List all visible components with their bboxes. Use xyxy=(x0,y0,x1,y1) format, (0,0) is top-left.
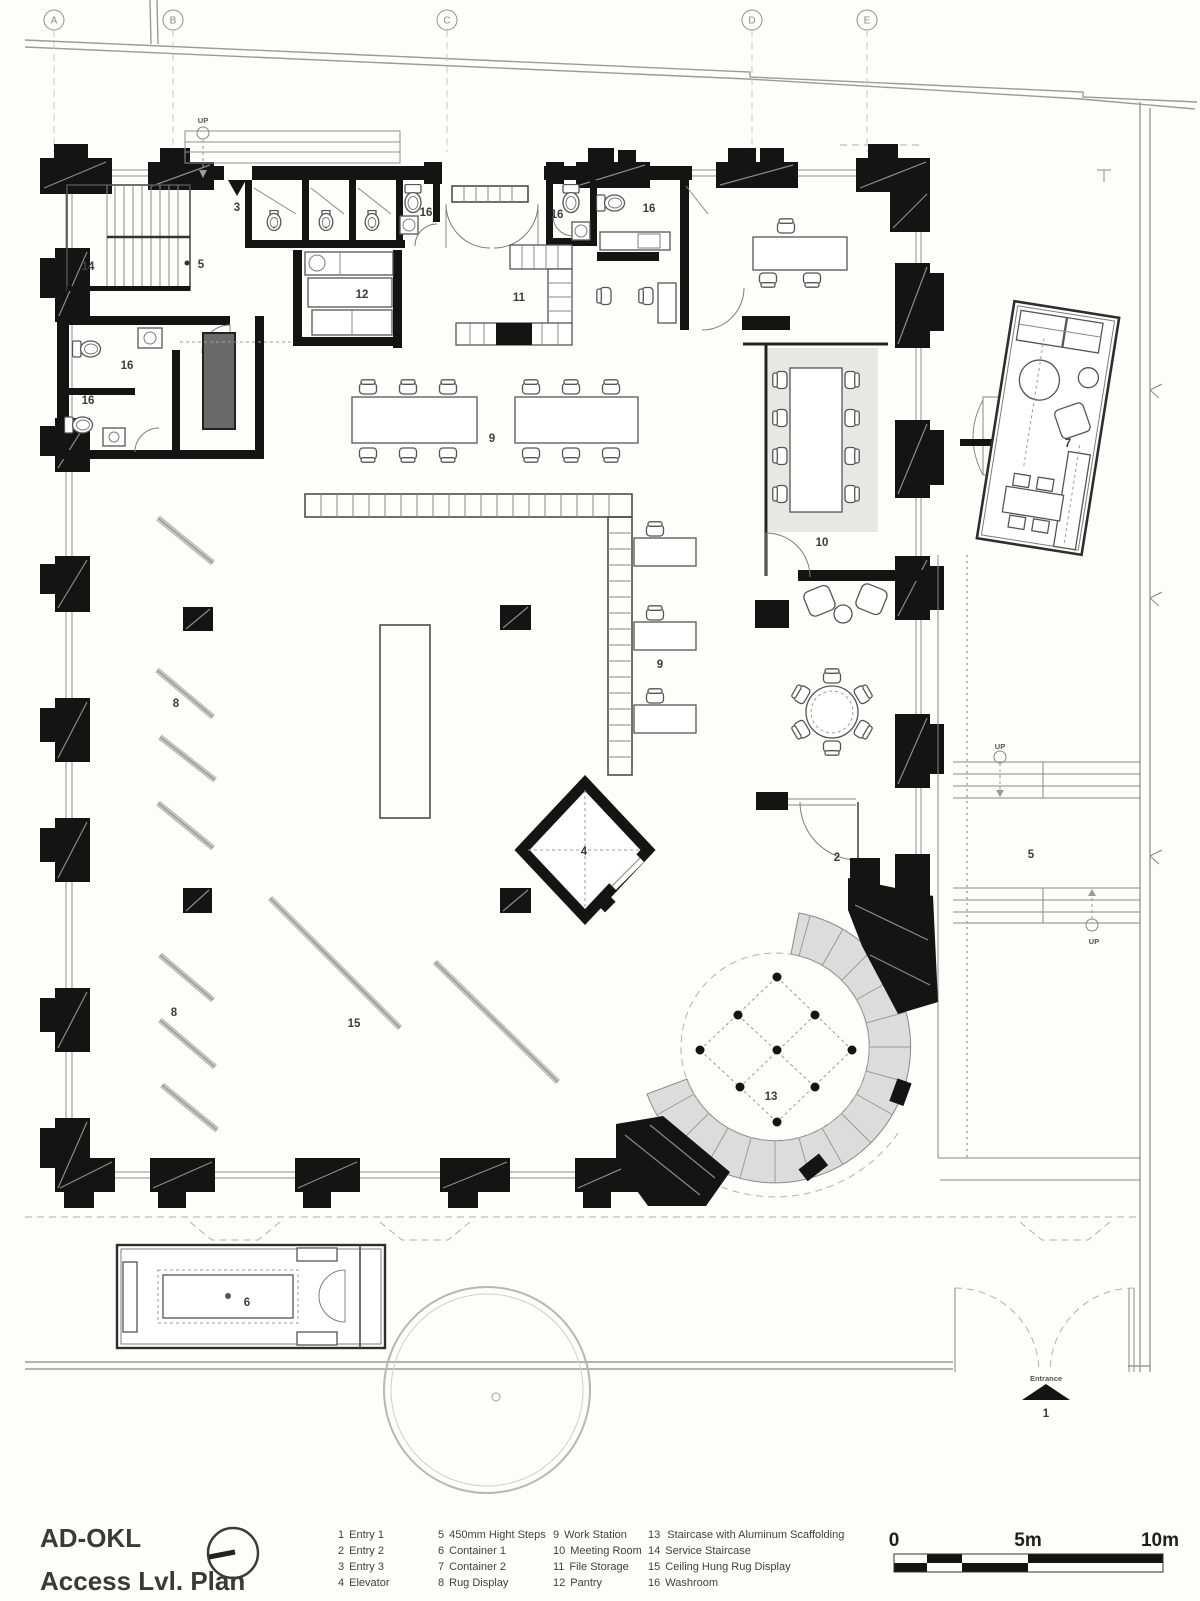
room-label: 9 xyxy=(489,433,495,445)
scale-label-mid: 5m xyxy=(1014,1530,1041,1551)
legend-item: 16Washroom xyxy=(648,1577,718,1589)
shaft xyxy=(203,333,235,429)
structural-grid: A B C D E xyxy=(44,10,877,152)
room-label: 3 xyxy=(234,202,240,214)
room-label: 8 xyxy=(171,1007,178,1019)
legend-column: 9Work Station 10Meeting Room 11File Stor… xyxy=(553,1529,642,1589)
scale-bar-graphic xyxy=(894,1554,1163,1572)
title-block: AD-OKL Access Lvl. Plan xyxy=(40,1523,245,1596)
site-road xyxy=(25,0,1197,109)
svg-text:UP: UP xyxy=(995,742,1005,751)
grid-label: B xyxy=(170,16,177,27)
grid-label: C xyxy=(443,16,450,27)
legend-item: 12Pantry xyxy=(553,1577,603,1589)
room-label: 7 xyxy=(1065,438,1071,450)
room-label: 9 xyxy=(657,659,663,671)
entrance-1: Entrance xyxy=(955,1288,1134,1400)
toilet-icon xyxy=(563,185,579,213)
entry-opening xyxy=(224,162,252,182)
entrance-text: Entrance xyxy=(1030,1374,1062,1383)
room-label: 16 xyxy=(82,395,95,407)
room-label: 5 xyxy=(198,259,205,271)
legend-item: 5450mm Hight Steps xyxy=(438,1529,546,1541)
room-label: 1 xyxy=(1043,1408,1050,1420)
urinal-icon xyxy=(319,211,333,231)
grid-label: E xyxy=(864,16,871,27)
svg-text:UP: UP xyxy=(1089,937,1099,946)
container-6 xyxy=(117,1245,385,1348)
room-label: 16 xyxy=(420,207,433,219)
room-label: 5 xyxy=(1028,849,1035,861)
svg-text:UP: UP xyxy=(198,116,208,125)
room-label: 12 xyxy=(356,289,369,301)
canopy-dashes xyxy=(190,1222,1110,1240)
up-marker: UP xyxy=(1086,889,1099,946)
floor-plan-sheet: A B C D E xyxy=(0,0,1200,1601)
display-desks xyxy=(634,522,696,733)
room-label: 2 xyxy=(834,852,840,864)
grid-bubble: E xyxy=(857,10,877,152)
legend-item: 3Entry 3 xyxy=(338,1561,384,1573)
work-tables xyxy=(352,380,638,462)
room-label: 16 xyxy=(121,360,134,372)
grid-label: D xyxy=(748,16,755,27)
room-label: 16 xyxy=(643,203,656,215)
legend-item: 9Work Station xyxy=(553,1529,627,1541)
up-marker: UP xyxy=(994,742,1006,797)
meeting-table-top xyxy=(753,219,847,287)
toilet-icon xyxy=(597,195,625,211)
legend: 1Entry 1 2Entry 2 3Entry 3 4Elevator 545… xyxy=(338,1529,844,1589)
chair-icon xyxy=(639,288,653,305)
room-label: 15 xyxy=(348,1018,361,1030)
scale-label-start: 0 xyxy=(889,1530,900,1551)
main-entry-steps xyxy=(446,186,538,248)
toilet-icon xyxy=(405,185,421,213)
room-label: 10 xyxy=(816,537,829,549)
legend-item: 8Rug Display xyxy=(438,1577,509,1589)
entry-arrow-icon xyxy=(228,180,246,196)
grid-label: A xyxy=(51,16,58,27)
entry-opening xyxy=(440,162,546,182)
legend-column: 5450mm Hight Steps 6Container 1 7Contain… xyxy=(438,1529,546,1589)
legend-item: 1Entry 1 xyxy=(338,1529,384,1541)
display-wall xyxy=(305,494,632,775)
chair-icon xyxy=(597,288,611,305)
floor-plan-drawing: A B C D E xyxy=(0,0,1200,1601)
entry-2 xyxy=(756,792,880,892)
entry-3: UP xyxy=(185,116,400,196)
lounge-seating xyxy=(802,582,889,623)
urinal-icon xyxy=(365,211,379,231)
room-label: 8 xyxy=(173,698,180,710)
entrance-arrow-icon xyxy=(1022,1384,1070,1400)
ceiling-hung-display-lines xyxy=(270,898,558,1082)
rug-plinth xyxy=(380,625,430,818)
room-label: 6 xyxy=(244,1297,250,1309)
grid-bubble: A xyxy=(44,10,64,152)
legend-item: 11File Storage xyxy=(553,1561,629,1573)
legend-item: 4Elevator xyxy=(338,1577,390,1589)
building-envelope-walls xyxy=(40,144,944,1208)
legend-item: 14Service Staircase xyxy=(648,1545,751,1557)
round-table xyxy=(790,669,873,755)
tree-icon xyxy=(384,1287,590,1493)
legend-item: 2Entry 2 xyxy=(338,1545,384,1557)
room-label: 14 xyxy=(82,261,95,273)
legend-item: 7Container 2 xyxy=(438,1561,506,1573)
scale-label-end: 10m xyxy=(1141,1530,1179,1551)
legend-item: 13Staircase with Aluminum Scaffolding xyxy=(648,1529,844,1541)
spiral-staircase xyxy=(616,878,938,1206)
grid-bubble: D xyxy=(742,10,762,152)
legend-item: 15Ceiling Hung Rug Display xyxy=(648,1561,791,1573)
room-label: 4 xyxy=(581,846,588,858)
steps-area: UP UP xyxy=(938,555,1140,1158)
toilet-icon xyxy=(65,417,93,433)
grid-bubble: C xyxy=(437,10,457,152)
boundary-tag-icon xyxy=(1097,170,1162,864)
legend-column: 1Entry 1 2Entry 2 3Entry 3 4Elevator xyxy=(338,1529,390,1589)
room-label: 16 xyxy=(551,209,564,221)
project-title: AD-OKL xyxy=(40,1523,141,1553)
container-7 xyxy=(960,301,1119,555)
room-label: 11 xyxy=(513,292,526,304)
scale-bar: 0 5m 10m xyxy=(889,1530,1179,1572)
room-label: 13 xyxy=(765,1091,778,1103)
legend-item: 6Container 1 xyxy=(438,1545,506,1557)
grid-bubble: B xyxy=(163,10,183,150)
toilet-icon xyxy=(73,341,101,357)
legend-column: 13Staircase with Aluminum Scaffolding 14… xyxy=(648,1529,844,1589)
legend-item: 10Meeting Room xyxy=(553,1545,642,1557)
urinal-icon xyxy=(267,211,281,231)
